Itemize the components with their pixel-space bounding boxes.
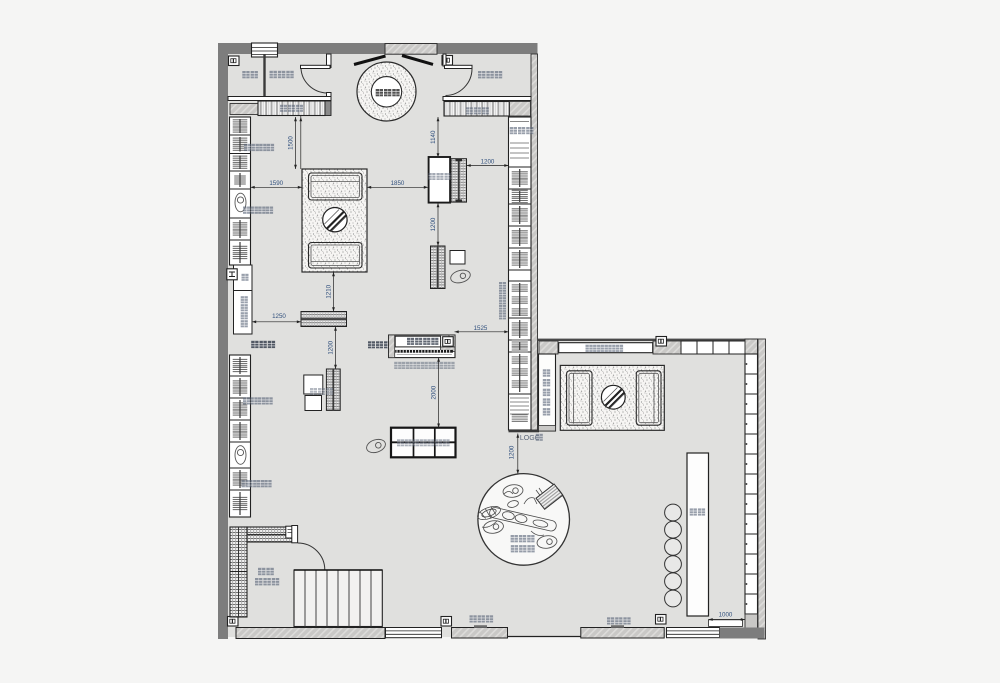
svg-text:1850: 1850 (391, 180, 405, 187)
svg-text:1200: 1200 (327, 340, 334, 354)
svg-text:1200: 1200 (481, 158, 495, 165)
svg-text:1200: 1200 (430, 217, 437, 231)
svg-text:1140: 1140 (430, 130, 437, 144)
svg-text:1200: 1200 (509, 445, 516, 459)
svg-text:2000: 2000 (430, 385, 437, 399)
svg-text:1590: 1590 (269, 180, 283, 187)
svg-text:1000: 1000 (719, 612, 733, 619)
svg-text:1525: 1525 (474, 325, 488, 332)
svg-text:1500: 1500 (287, 136, 294, 150)
svg-text:1210: 1210 (325, 284, 332, 298)
svg-text:1250: 1250 (272, 313, 286, 320)
